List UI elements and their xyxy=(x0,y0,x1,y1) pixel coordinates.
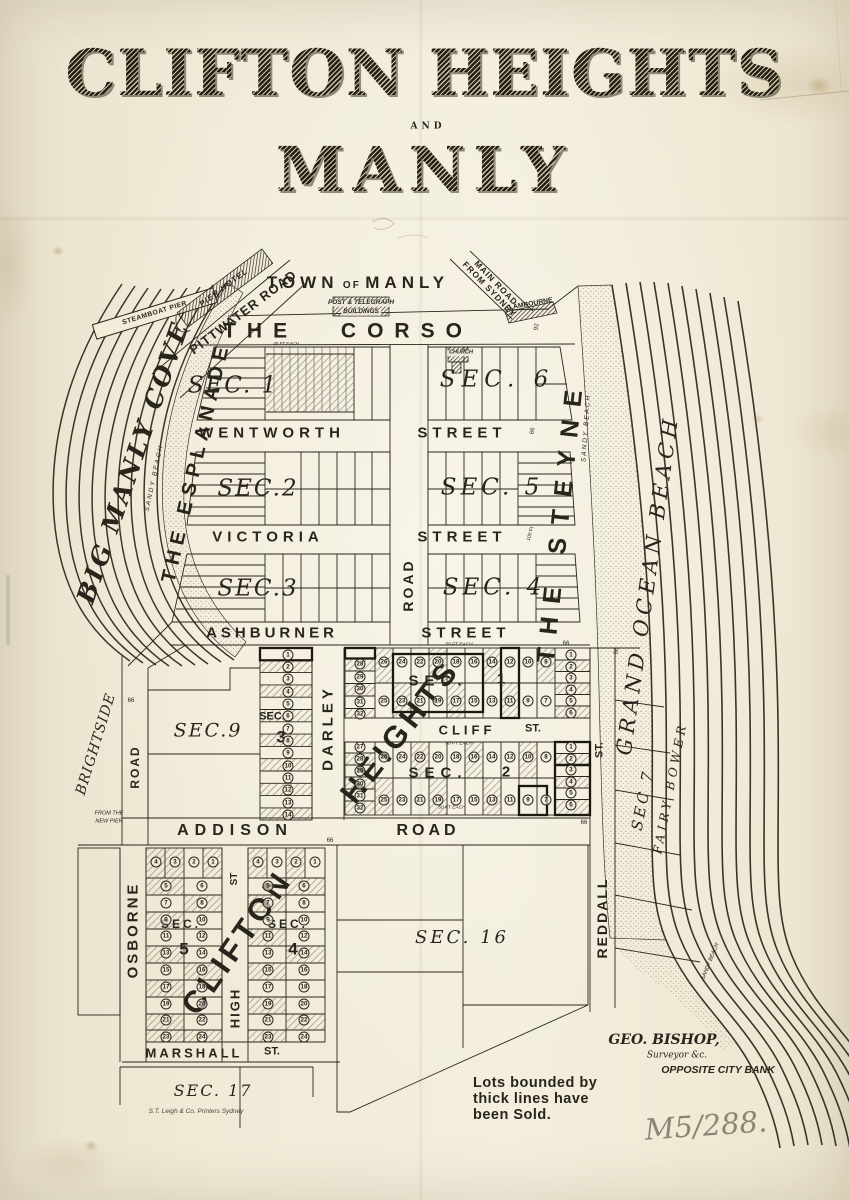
lot-number: 12 xyxy=(505,657,516,668)
addison-label: ADDISON xyxy=(177,823,293,839)
lot-number: 21 xyxy=(263,1015,274,1026)
lot-number: 22 xyxy=(415,657,426,668)
lot-number: 20 xyxy=(433,752,444,763)
lot-number: 19 xyxy=(263,998,274,1009)
lot-number: 16 xyxy=(197,965,208,976)
wentworth-label: WENTWORTH xyxy=(199,426,345,441)
lot-number: 7 xyxy=(541,795,552,806)
lot-number: 17 xyxy=(451,795,462,806)
lot-number: 10 xyxy=(523,752,534,763)
lot-number: 9 xyxy=(283,748,294,759)
lot-number: 13 xyxy=(161,948,172,959)
lot-number: 31 xyxy=(355,696,366,707)
cliff-label: CLIFF xyxy=(439,724,496,737)
post-telegraph-label-1: POST & TELEGRAPH xyxy=(326,300,396,307)
from-new-pier-2: NEW PIER xyxy=(95,819,122,825)
lot-number: 14 xyxy=(487,752,498,763)
lot-number: 14 xyxy=(283,810,294,821)
lot-number: 1 xyxy=(283,649,294,660)
lot-number: 6 xyxy=(566,799,577,810)
lot-number: 8 xyxy=(299,897,310,908)
lot-number: 20 xyxy=(197,998,208,1009)
paper-stain xyxy=(52,246,64,256)
catalog-number-pencil: M5/288. xyxy=(644,1107,768,1144)
lot-number: 9 xyxy=(523,696,534,707)
of-word: OF xyxy=(343,280,361,291)
lot-number: 12 xyxy=(197,931,208,942)
lot-number: 4 xyxy=(253,857,264,868)
dim-66-f: 66 xyxy=(563,641,570,647)
victoria-label: VICTORIA xyxy=(212,530,323,545)
sec6-label: SEC. 6 xyxy=(440,369,555,392)
lot-number: 23 xyxy=(161,1032,172,1043)
church-label: CHURCH xyxy=(447,350,475,356)
lot-number: 7 xyxy=(161,897,172,908)
clifton-sec5-number: 5 xyxy=(179,941,188,958)
lot-number: 10 xyxy=(299,914,310,925)
lot-number: 25 xyxy=(379,795,390,806)
lot-number: 18 xyxy=(299,981,310,992)
lot-number: 14 xyxy=(299,948,310,959)
dim-50ft-2: 50 FT EACH xyxy=(445,743,472,748)
lot-number: 7 xyxy=(283,723,294,734)
dim-66-d: 66 xyxy=(581,820,588,826)
heights-sec3-label: SEC. xyxy=(259,712,285,723)
ashburner-label: ASHBURNER xyxy=(206,626,338,641)
sold-note-line3: been Sold. xyxy=(473,1108,551,1123)
darley-label: DARLEY xyxy=(321,685,336,771)
lot-number: 5 xyxy=(263,881,274,892)
lot-number: 16 xyxy=(299,965,310,976)
sold-note-line1: Lots bounded by xyxy=(473,1076,597,1091)
lot-number: 24 xyxy=(397,657,408,668)
lot-number: 12 xyxy=(505,752,516,763)
lot-number: 26 xyxy=(379,657,390,668)
paper-stain xyxy=(752,414,764,424)
dim-66-b: 66 xyxy=(128,698,135,704)
lot-number: 3 xyxy=(566,765,577,776)
lot-number: 18 xyxy=(451,752,462,763)
lot-number: 1 xyxy=(566,650,577,661)
lot-number: 23 xyxy=(397,696,408,707)
lot-number: 7 xyxy=(263,897,274,908)
sec2-label: SEC.2 xyxy=(217,478,298,501)
map-sheet: CLIFTON HEIGHTS AND MANLY TOWN OF MANLY … xyxy=(0,0,849,1200)
surveyor-name: GEO. BISHOP, xyxy=(608,1033,719,1047)
dim-66-e: 66 xyxy=(327,838,334,844)
lot-number: 4 xyxy=(283,686,294,697)
lot-number: 11 xyxy=(505,795,516,806)
paper-stain xyxy=(84,1140,98,1152)
lot-number: 1 xyxy=(566,742,577,753)
lot-number: 22 xyxy=(299,1015,310,1026)
the-corso-label: THE CORSO xyxy=(223,321,473,342)
heights-sec2-label: SEC. xyxy=(408,766,467,781)
lot-number: 17 xyxy=(161,981,172,992)
marshall-label: MARSHALL xyxy=(146,1047,243,1060)
dim-50ft-3: 50 FT EACH xyxy=(438,807,465,812)
lot-number: 16 xyxy=(469,752,480,763)
lot-number: 3 xyxy=(170,857,181,868)
lot-number: 14 xyxy=(487,657,498,668)
lot-number: 11 xyxy=(283,773,294,784)
reddall-st-label: ST. xyxy=(595,742,606,758)
sec1-label: SEC. 1 xyxy=(188,375,279,398)
lot-number: 5 xyxy=(566,696,577,707)
lot-number: 20 xyxy=(433,657,444,668)
lot-number: 13 xyxy=(263,948,274,959)
paper-stain xyxy=(806,76,832,96)
clifton-sec4-number: 4 xyxy=(288,941,297,958)
lot-number: 11 xyxy=(161,931,172,942)
sec17-label: SEC. 17 xyxy=(174,1083,253,1099)
fold-line-horizontal xyxy=(0,216,849,221)
lot-number: 13 xyxy=(487,795,498,806)
lot-number: 19 xyxy=(433,696,444,707)
surveyor-address: OPPOSITE CITY BANK xyxy=(661,1065,775,1076)
lot-number: 6 xyxy=(197,881,208,892)
lot-number: 6 xyxy=(299,881,310,892)
manly-word: MANLY xyxy=(365,273,449,292)
reddall-label: REDDALL xyxy=(595,878,609,959)
lot-number: 21 xyxy=(415,795,426,806)
lot-number: 4 xyxy=(566,776,577,787)
lot-number: 24 xyxy=(299,1032,310,1043)
lot-number: 1 xyxy=(208,857,219,868)
dim-92: 92 xyxy=(533,323,540,331)
lot-number: 32 xyxy=(355,709,366,720)
lot-number: 6 xyxy=(566,708,577,719)
lot-number: 6 xyxy=(283,711,294,722)
heights-sec1-number: 1 xyxy=(497,672,505,687)
lot-number: 23 xyxy=(397,795,408,806)
lot-number: 2 xyxy=(189,857,200,868)
lot-number: 10 xyxy=(197,914,208,925)
brightside-road-label: ROAD xyxy=(129,745,141,788)
lot-number: 15 xyxy=(263,965,274,976)
map-title-line2: MANLY xyxy=(0,133,849,206)
dim-40ft: 40 FT EACH xyxy=(273,342,299,347)
lot-number: 15 xyxy=(469,795,480,806)
high-label: HIGH xyxy=(229,988,242,1029)
lot-number: 9 xyxy=(161,914,172,925)
lot-number: 11 xyxy=(505,696,516,707)
sold-note-line2: thick lines have xyxy=(473,1092,589,1107)
lot-number: 14 xyxy=(197,948,208,959)
printer-imprint: S.T. Leigh & Co. Printers Sydney xyxy=(149,1109,244,1116)
lot-number: 10 xyxy=(283,760,294,771)
lot-number: 30 xyxy=(355,778,366,789)
lot-number: 22 xyxy=(415,752,426,763)
lot-number: 24 xyxy=(197,1032,208,1043)
lot-number: 23 xyxy=(263,1032,274,1043)
lot-number: 29 xyxy=(355,766,366,777)
lot-number: 13 xyxy=(283,797,294,808)
darley-road-label: ROAD xyxy=(401,558,415,611)
lot-number: 30 xyxy=(355,684,366,695)
lot-number: 17 xyxy=(263,981,274,992)
lot-number: 2 xyxy=(566,753,577,764)
lot-number: 25 xyxy=(379,696,390,707)
lot-number: 28 xyxy=(355,659,366,670)
lot-number: 3 xyxy=(566,673,577,684)
high-st-label: ST xyxy=(230,873,240,886)
heights-sec2-number: 2 xyxy=(502,765,510,780)
lot-number: 29 xyxy=(355,671,366,682)
lot-number: 4 xyxy=(566,684,577,695)
lot-number: 12 xyxy=(299,931,310,942)
sec4-label: SEC. 4 xyxy=(443,577,546,600)
lot-number: 21 xyxy=(415,696,426,707)
lot-number: 5 xyxy=(283,698,294,709)
lot-number: 17 xyxy=(451,696,462,707)
sec9-label: SEC.9 xyxy=(174,722,243,741)
dim-66-a: 66 xyxy=(529,427,536,435)
lot-number: 3 xyxy=(272,857,283,868)
lot-number: 18 xyxy=(197,981,208,992)
lot-number: 18 xyxy=(451,657,462,668)
lot-number: 11 xyxy=(263,931,274,942)
lot-number: 2 xyxy=(566,661,577,672)
lot-number: 5 xyxy=(566,788,577,799)
lot-number: 4 xyxy=(151,857,162,868)
lot-number: 27 xyxy=(355,742,366,753)
addison-road-label: ROAD xyxy=(396,823,459,839)
lot-number: 15 xyxy=(469,696,480,707)
surveyor-title: Surveyor &c. xyxy=(647,1052,707,1061)
lot-number: 31 xyxy=(355,790,366,801)
lot-number: 28 xyxy=(355,754,366,765)
osborne-label: OSBORNE xyxy=(126,882,141,979)
lot-number: 13 xyxy=(487,696,498,707)
sec5-label: SEC. 5 xyxy=(441,477,544,500)
lot-number: 12 xyxy=(283,785,294,796)
lot-number: 3 xyxy=(283,674,294,685)
ashburner-street-label: STREET xyxy=(421,626,510,641)
lot-number: 2 xyxy=(291,857,302,868)
lot-number: 15 xyxy=(161,965,172,976)
lot-number: 1 xyxy=(310,857,321,868)
dim-66-c: 66 xyxy=(613,647,620,655)
lot-number: 8 xyxy=(197,897,208,908)
victoria-street-label: STREET xyxy=(417,530,506,545)
lot-number: 9 xyxy=(523,795,534,806)
lot-number: 19 xyxy=(161,998,172,1009)
lot-number: 10 xyxy=(523,657,534,668)
lot-number: 20 xyxy=(299,998,310,1009)
cliff-st-label: ST. xyxy=(525,724,541,735)
lot-number: 26 xyxy=(379,752,390,763)
dim-50ft-1: 50 FT EACH xyxy=(445,644,472,649)
lot-number: 8 xyxy=(283,735,294,746)
from-new-pier-1: FROM THE xyxy=(95,811,124,817)
map-title-line1: CLIFTON HEIGHTS xyxy=(0,36,849,111)
lot-number: 2 xyxy=(283,661,294,672)
lot-number: 32 xyxy=(355,803,366,814)
lot-number: 21 xyxy=(161,1015,172,1026)
lot-number: 8 xyxy=(541,752,552,763)
lot-number: 19 xyxy=(433,795,444,806)
lot-number: 7 xyxy=(541,696,552,707)
map-title-and: AND xyxy=(410,123,445,132)
lot-number: 5 xyxy=(161,881,172,892)
lot-number: 22 xyxy=(197,1015,208,1026)
lot-number: 9 xyxy=(263,914,274,925)
lot-number: 24 xyxy=(397,752,408,763)
marshall-st-label: ST. xyxy=(264,1047,280,1058)
lot-number: 8 xyxy=(541,657,552,668)
post-telegraph-label-2: BUILDINGS xyxy=(341,309,381,316)
sec16-label: SEC. 16 xyxy=(415,929,509,947)
sec3-label: SEC.3 xyxy=(217,578,298,601)
wentworth-street-label: STREET xyxy=(417,426,506,441)
lot-number: 16 xyxy=(469,657,480,668)
